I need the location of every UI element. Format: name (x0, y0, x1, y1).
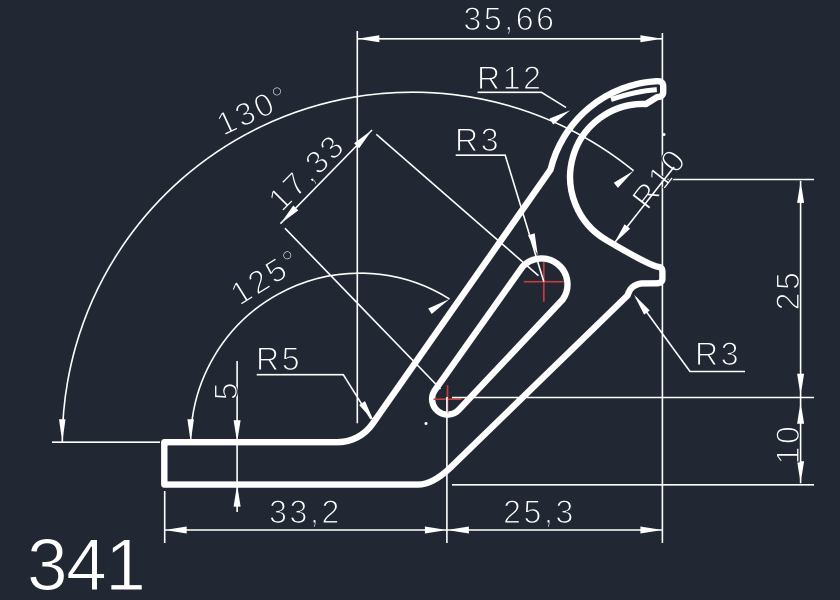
svg-text:25: 25 (770, 270, 806, 311)
svg-text:R3: R3 (455, 122, 501, 158)
svg-text:10: 10 (770, 424, 806, 465)
svg-text:35,66: 35,66 (463, 1, 556, 37)
svg-text:341: 341 (27, 525, 144, 600)
svg-text:R5: R5 (256, 341, 302, 377)
svg-text:5: 5 (208, 380, 244, 400)
svg-text:R12: R12 (477, 60, 544, 96)
svg-text:R3: R3 (695, 336, 741, 372)
svg-text:25,3: 25,3 (503, 494, 576, 530)
svg-text:33,2: 33,2 (269, 494, 342, 530)
